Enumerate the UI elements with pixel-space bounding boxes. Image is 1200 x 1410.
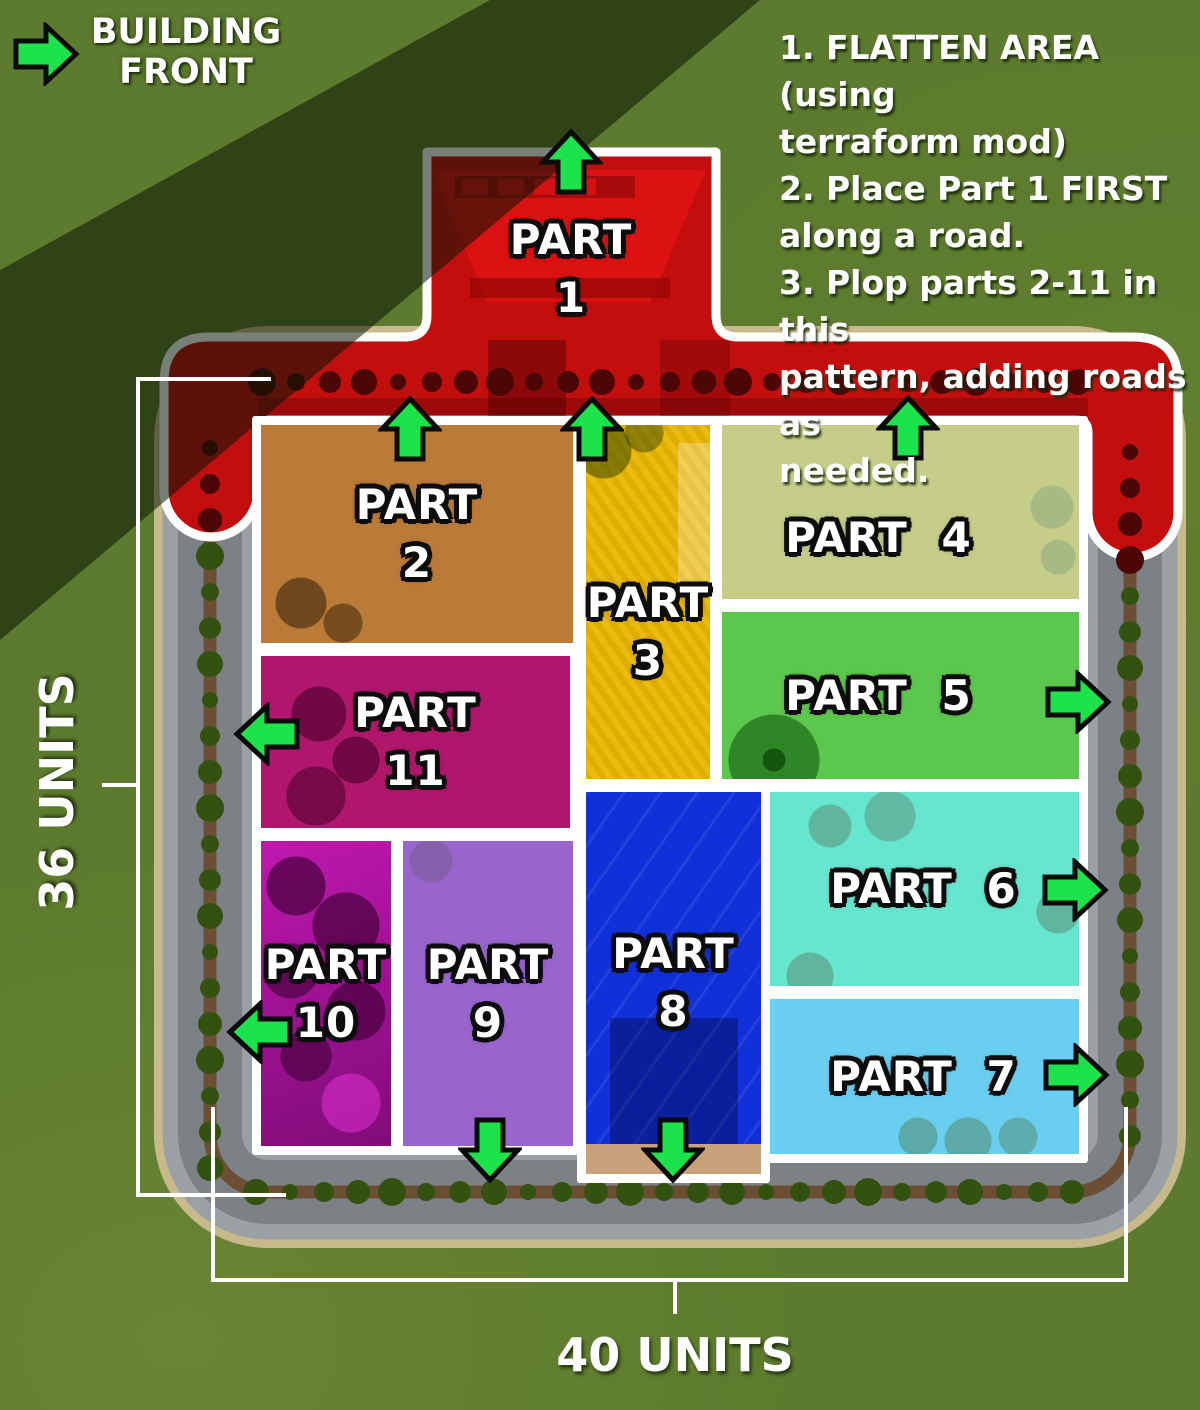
part-5-region: PART 5 <box>713 603 1088 788</box>
part-7-front-arrow-icon <box>1044 1041 1108 1109</box>
part-5-front-arrow-icon <box>1046 668 1110 736</box>
part-8-label-word: PART <box>612 925 735 983</box>
part-3-label: PART 3 <box>587 574 710 690</box>
part-7-label-number: 7 <box>986 1048 1016 1106</box>
part-2-label: PART 2 <box>356 476 479 592</box>
part-9-region: PART 9 <box>394 832 582 1155</box>
part-5-label-number: 5 <box>941 667 971 725</box>
part-7-label-word: PART <box>830 1048 953 1106</box>
width-bracket-line <box>211 1278 1128 1282</box>
part-1-front-arrow-icon <box>539 128 603 196</box>
part-2-label-word: PART <box>356 476 479 534</box>
part-3-label-word: PART <box>587 574 710 632</box>
part-6-label: PART 6 <box>830 860 1016 918</box>
part-6-region: PART 6 <box>759 783 1088 995</box>
part-6-label-word: PART <box>830 860 953 918</box>
width-dimension-label: 40 UNITS <box>515 1328 835 1382</box>
width-bracket-tick <box>673 1282 677 1314</box>
instruction-line: pattern, adding roads as <box>779 353 1199 447</box>
part-11-label: PART 11 <box>354 684 477 800</box>
instruction-line: needed. <box>779 447 1199 494</box>
instruction-line: terraform mod) <box>779 118 1199 165</box>
part-2-label-number: 2 <box>356 534 479 592</box>
part-11-region: PART 11 <box>252 647 579 837</box>
building-front-legend-arrow-icon <box>14 20 78 88</box>
part-10-front-arrow-icon <box>228 998 292 1066</box>
part-11-label-number: 11 <box>354 742 477 800</box>
height-bracket-line <box>136 377 140 1197</box>
part-1-label: PART 1 <box>432 186 710 336</box>
instruction-line: 1. FLATTEN AREA (using <box>779 24 1199 118</box>
part-3-region: PART 3 <box>577 416 719 788</box>
part-1-label-word: PART <box>510 211 633 269</box>
instruction-line: 3. Plop parts 2-11 in this <box>779 259 1199 353</box>
part-11-label-word: PART <box>354 684 477 742</box>
part-9-label-word: PART <box>427 936 550 994</box>
part-3-front-arrow-icon <box>560 395 624 463</box>
part-9-front-arrow-icon <box>458 1116 522 1184</box>
instruction-line: along a road. <box>779 212 1199 259</box>
part-7-label: PART 7 <box>830 1048 1016 1106</box>
part-5-label-word: PART <box>785 667 908 725</box>
part-6-label-number: 6 <box>986 860 1016 918</box>
part-2-front-arrow-icon <box>378 395 442 463</box>
height-bracket-top-arm <box>136 377 271 381</box>
part-9-label: PART 9 <box>427 936 550 1052</box>
part-7-region: PART 7 <box>759 990 1088 1163</box>
part-9-label-number: 9 <box>427 994 550 1052</box>
part-6-front-arrow-icon <box>1043 856 1107 924</box>
part-8-label: PART 8 <box>612 925 735 1041</box>
width-bracket-right-arm <box>1124 1107 1128 1282</box>
height-dimension-label: 36 UNITS <box>30 632 84 952</box>
instruction-line: 2. Place Part 1 FIRST <box>779 165 1199 212</box>
part-4-label-word: PART <box>785 509 908 567</box>
part-4-label-number: 4 <box>941 509 971 567</box>
instructions: 1. FLATTEN AREA (using terraform mod) 2.… <box>779 24 1199 494</box>
part-5-label: PART 5 <box>785 667 971 725</box>
part-10-label-word: PART <box>265 936 388 994</box>
part-8-label-number: 8 <box>612 983 735 1041</box>
part-1-label-number: 1 <box>510 269 633 327</box>
part-11-front-arrow-icon <box>235 700 299 768</box>
part-4-label: PART 4 <box>785 509 971 567</box>
height-bracket-tick <box>102 783 138 787</box>
part-10-region: PART 10 <box>252 832 400 1155</box>
part-3-label-number: 3 <box>587 632 710 690</box>
width-bracket-left-arm <box>211 1107 215 1282</box>
part-8-front-arrow-icon <box>641 1116 705 1184</box>
placement-guide: PART 2 PART 3 PART 4 PART 5 PART 6 <box>0 0 1200 1410</box>
building-front-legend-label: BUILDING FRONT <box>86 12 286 92</box>
